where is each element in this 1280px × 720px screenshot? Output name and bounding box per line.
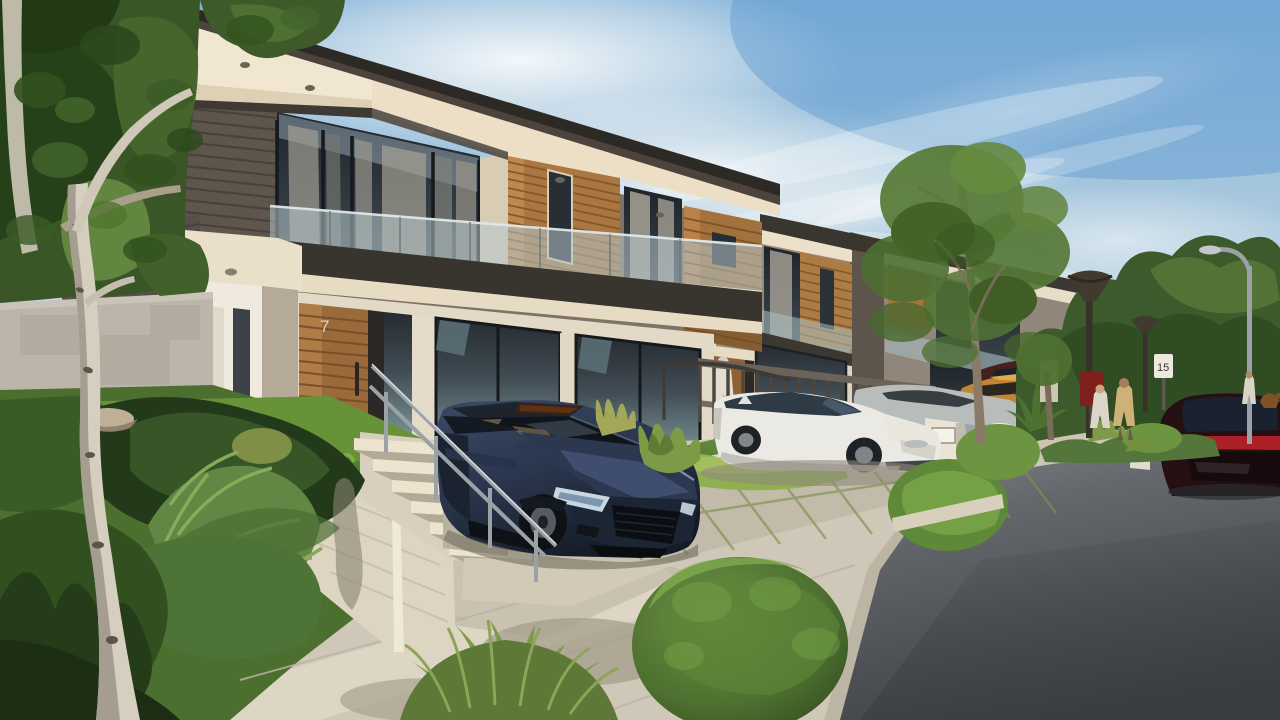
svg-text:15: 15 bbox=[1157, 362, 1169, 374]
svg-text:7: 7 bbox=[320, 317, 329, 336]
